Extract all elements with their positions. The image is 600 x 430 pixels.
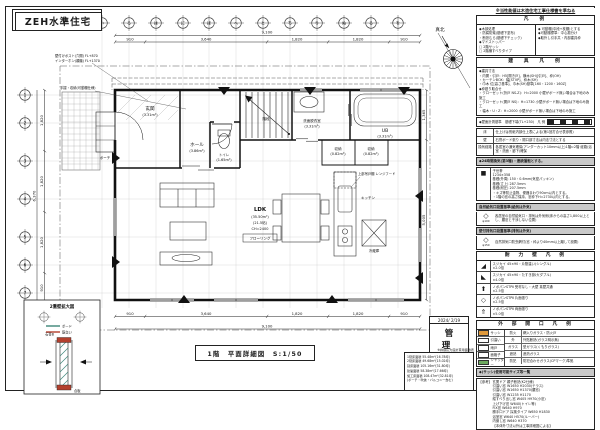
opening-row: ガラス型ガラス(くもりガラス) xyxy=(505,343,594,350)
bearing-row: ⬆ ノボパンSTPⅡ 受材なし・大壁 真壁共通×2.5倍 xyxy=(477,283,594,294)
bearing-row: ◇ ノボパンSTPⅡ 片面張り×2.5倍 xyxy=(477,294,594,305)
spec-panel: ※当性能値は木造住宅工事仕様書を準ねる 凡 例 ◆木部処理 ・防腐防蟻(基礎下塗… xyxy=(476,8,595,430)
dim-seg: 5,005 xyxy=(421,214,426,225)
openings-legend-title: 外 部 開 口 凡 例 xyxy=(476,320,595,330)
bearing-symbol: ⇑ xyxy=(477,307,491,317)
grid-label: と xyxy=(261,21,265,26)
grid-label: 4 xyxy=(24,197,27,202)
kitchen-counter xyxy=(334,172,356,256)
north-arrow: 真北 xyxy=(435,26,470,88)
dim-seg: 1,820 xyxy=(353,37,364,42)
legend-line: □ 2階横すべりタイプ xyxy=(479,49,533,53)
dim-seg: 3,640 xyxy=(201,311,212,316)
dining-table xyxy=(282,194,320,242)
sheet-title: ZEH水準住宅 xyxy=(15,12,102,31)
room-label-fridge: 冷蔵庫 xyxy=(369,248,380,253)
room-label-wash: 洗面脱衣室 xyxy=(303,118,321,123)
room-label-storage2: 収納 xyxy=(368,146,376,151)
opening-swatch: 雨戸 xyxy=(477,344,504,351)
north-label: 真北 xyxy=(435,26,445,33)
dim-top-overall: 9,100 xyxy=(262,30,273,35)
wall-detail-box: 2重壁拡大図 ボード 筋交い 石膏B 合板 xyxy=(24,300,100,394)
note-intercom: インターホン(親機) FL+1370 xyxy=(55,58,100,63)
dim-seg: 910 xyxy=(400,311,408,316)
exhaust-vent-bar: 壁付排気口設置基準(排気は外気) xyxy=(476,227,595,235)
room-label-storage1: 収納 xyxy=(335,146,343,151)
opening-row: 防火網入りガラス・防火戸 xyxy=(505,330,594,336)
openings-legend: サッシ 引違い 雨戸 面格子 シャッター 防火網入りガラス・防火戸 外外貼断熱(… xyxy=(476,330,595,367)
room-label-toilet: トイレ xyxy=(219,153,230,157)
finish-table: 床 仕上げは別紙内部仕上表による(第1回打合せ表参照) 壁 石膏ボード張り・開口… xyxy=(476,128,595,156)
table-row: 壁 石膏ボード張り・開口部寸法は内法寸法とする xyxy=(477,136,594,143)
svg-text:CH=2400: CH=2400 xyxy=(252,227,269,231)
supply-vent-row: ◇ φ100 各居室の自然給気口・排気は外気側(床からの高さ1,800以上とし、… xyxy=(476,212,595,226)
dim-seg: 910 xyxy=(126,37,134,42)
dim-seg: 910 xyxy=(400,37,408,42)
bearing-row: ◣ スジカイ 45×90・たすき掛け(ダブル)×4.0倍 xyxy=(477,271,594,282)
bearing-row: ◢ スジカイ 45×90・片筋違い(シングル)×2.0倍 xyxy=(477,261,594,271)
opening-row: 防犯防犯合わせガラス(CPマーク)準拠 xyxy=(505,357,594,364)
dim-seg: 1,820 xyxy=(39,175,44,186)
grid-label: 1 xyxy=(24,93,27,98)
bearing-wall-legend: ◢ スジカイ 45×90・片筋違い(シングル)×2.0倍 ◣ スジカイ 45×9… xyxy=(476,261,595,318)
dim-left-overall: 6,370 xyxy=(32,190,37,201)
area-line: (ポーチ・吹抜・バルコニー含む) xyxy=(407,378,471,383)
sizes-list: 【参考】 玄関ドア 親子断熱(K2仕様) 引違い窓 W1650 H2030(テラ… xyxy=(476,378,595,430)
grid-label: 7 xyxy=(24,291,27,296)
grid-label: 3 xyxy=(24,159,27,164)
dim-seg: 910 xyxy=(126,311,134,316)
tv xyxy=(172,255,200,262)
dimension-chains xyxy=(37,34,428,331)
svg-text:(3.31m²): (3.31m²) xyxy=(142,113,158,117)
legend-line: ◆取外し引手共・内部建具枠 xyxy=(538,36,592,40)
sizes-bar: ◆(サッシ)使用可能サイズ等一覧 xyxy=(476,368,595,376)
walls-exterior xyxy=(115,90,420,300)
walls-interior xyxy=(115,90,420,168)
svg-text:(1.65m²): (1.65m²) xyxy=(216,158,232,162)
opening-swatch: 引違い xyxy=(477,336,504,343)
dim-seg: 1,820 xyxy=(292,37,303,42)
area-note-box: 1階床面積 55.48m²(16.78坪) 2階床面積 49.68m²(15.0… xyxy=(404,352,474,391)
coffee-table xyxy=(170,222,206,240)
dim-seg: 1,365 xyxy=(421,109,426,120)
table-row: 換気経路 各居室の通気確保(アンダーカット10mm以上)1階⇔2階 経路(浴室・… xyxy=(477,143,594,155)
legend-brace-label: 筋交い xyxy=(62,330,73,335)
bearing-row: ⇑ ノボパンSTPⅡ 両面張り×5.0倍 xyxy=(477,306,594,317)
room-label-stair: 階段 xyxy=(263,116,271,121)
room-label-genkan: 玄関 xyxy=(145,105,155,112)
table-row: 床 仕上げは別紙内部仕上表による(第1回打合せ表参照) xyxy=(477,129,594,135)
wall-detail-title: 2重壁拡大図 xyxy=(50,303,75,310)
svg-text:(3.31m²): (3.31m²) xyxy=(304,125,320,129)
fitting-line: ・クローゼット(折戸 NS-Z)：H=2000 小壁がボード無い場合は下地のみ施… xyxy=(479,91,592,100)
baseline-row: ◆壁面計測基準 基礎下端(TL+230) 凡 例 xyxy=(476,117,595,127)
size-line: 【本体外寸法以外は工事詳細図による】 xyxy=(493,424,593,428)
svg-text:(0.82m²): (0.82m²) xyxy=(330,152,346,156)
svg-text:フローリング: フローリング xyxy=(250,236,271,241)
svg-text:(21.5帖): (21.5帖) xyxy=(253,220,268,225)
supply-vent-bar: 自然給気口設置基準(給気は外気) xyxy=(476,203,595,211)
legend-box: 凡 例 ◆木部処理 ・防腐防蟻(基礎下塗布) ・断熱むら(基礎下チェック) ◆マ… xyxy=(476,15,595,56)
grid-label: 2 xyxy=(24,121,27,126)
opening-row: 外外貼断熱(ガラス明示無) xyxy=(505,336,594,343)
detail-note-left: 石膏B xyxy=(45,332,55,337)
opening-row: 遮熱遮熱ガラス xyxy=(505,350,594,357)
note-post: 壁付けポスト(穴開) FL+870 xyxy=(55,53,98,58)
note-hood: 上部吊戸棚 レンジフード xyxy=(358,171,395,176)
dimension-texts: 9,100 910 3,640 1,820 1,820 910 910 3,64… xyxy=(32,30,427,329)
black-square-icon: ■ xyxy=(477,168,491,201)
sofa xyxy=(160,183,214,207)
drawing-sheet: { "sheet": { "title": "ZEH水準住宅", "captio… xyxy=(0,0,600,400)
bearing-symbol: ◣ xyxy=(477,272,491,282)
note-shelf: 手摺・収納(可動棚仕様) xyxy=(60,85,96,90)
svg-text:(3.31m²): (3.31m²) xyxy=(377,135,393,139)
vent-bar: ◆24時間換気(第3種)・連続運転とする。 xyxy=(476,157,595,165)
sheet-title-box: ZEH水準住宅 xyxy=(12,9,102,31)
toilet-tank xyxy=(218,130,230,136)
grid-bubbles-top: い ろ は に ほ へ と ち り ぬ る を xyxy=(94,15,406,31)
room-label-ldk: LDK xyxy=(254,207,267,213)
opening-swatch: シャッター xyxy=(477,358,504,365)
fitting-line: ・クローゼット(開戸 NS)：H=1730 小壁がボード無い場合は下地のみ施工 xyxy=(479,100,592,109)
detail-note-right: 合板 xyxy=(74,388,81,393)
grid-label: 6 xyxy=(24,263,27,268)
room-label-kitchen: キッチン xyxy=(361,195,375,200)
fitting-line: ・幅木・U・Z：H=2000 小壁がボード無い場合は下地のみ施工 xyxy=(479,109,592,113)
dim-seg: 1,820 xyxy=(353,311,364,316)
scale-bar xyxy=(547,119,592,125)
room-label-porch: ポーチ xyxy=(100,155,111,160)
grid-label: へ xyxy=(234,21,238,26)
svg-text:(3.86m²): (3.86m²) xyxy=(189,149,205,153)
grid-label: 5 xyxy=(24,235,27,240)
insul-line: ・1階の窓の高さ保持、窓枠下H=2730以内とする。 xyxy=(493,195,593,199)
paving-grid xyxy=(62,92,100,170)
bearing-symbol: ◢ xyxy=(477,261,491,271)
bathtub xyxy=(354,94,416,126)
dim-bottom-overall: 9,100 xyxy=(262,324,273,329)
stairs xyxy=(245,92,290,138)
stamp-date: 2024/ 2/19 xyxy=(430,317,468,324)
bearing-symbol: ◇ xyxy=(477,295,491,305)
tv-board xyxy=(160,252,212,265)
eave-lines xyxy=(112,78,423,90)
compass-icon xyxy=(444,50,463,69)
bearing-wall-legend-title: 耐 力 壁 凡 例 xyxy=(476,251,595,261)
insulation-box: ■ 子世帯 1234×358 基礎(外周) 150・0.6mm(気密パッキン) … xyxy=(476,167,595,202)
dim-seg: 1,820 xyxy=(39,236,44,247)
dim-seg: 1,820 xyxy=(39,114,44,125)
spec-disclaimer: ※当性能値は木造住宅工事仕様書を準ねる xyxy=(476,8,595,14)
svg-text:(0.82m²): (0.82m²) xyxy=(363,152,379,156)
dim-seg: 910 xyxy=(39,284,44,292)
range-hood xyxy=(334,172,356,188)
grid-label: を xyxy=(396,20,400,26)
fittings-legend-box: 建 具 凡 例 ◆建具寸法 ・内開・引戸：H5[開き戸]、横木(SH)[引戸]、… xyxy=(476,57,595,115)
dim-seg: 1,820 xyxy=(292,311,303,316)
grid-label: る xyxy=(369,21,373,26)
svg-text:(35.50m²): (35.50m²) xyxy=(251,215,269,219)
exhaust-vent-row: ◇ φ150 自然排気口防虫網付(窓・枠より40mm以上離して設置) xyxy=(476,236,595,250)
legend-board-label: ボード xyxy=(62,324,72,329)
room-label-hall: ホール xyxy=(190,142,204,148)
room-label-bath: UB xyxy=(382,128,389,134)
bearing-symbol: ⬆ xyxy=(477,284,491,294)
dim-seg: 3,640 xyxy=(201,37,212,42)
drawing-caption: 1階 平面詳細図 S:1/50 xyxy=(195,345,315,361)
